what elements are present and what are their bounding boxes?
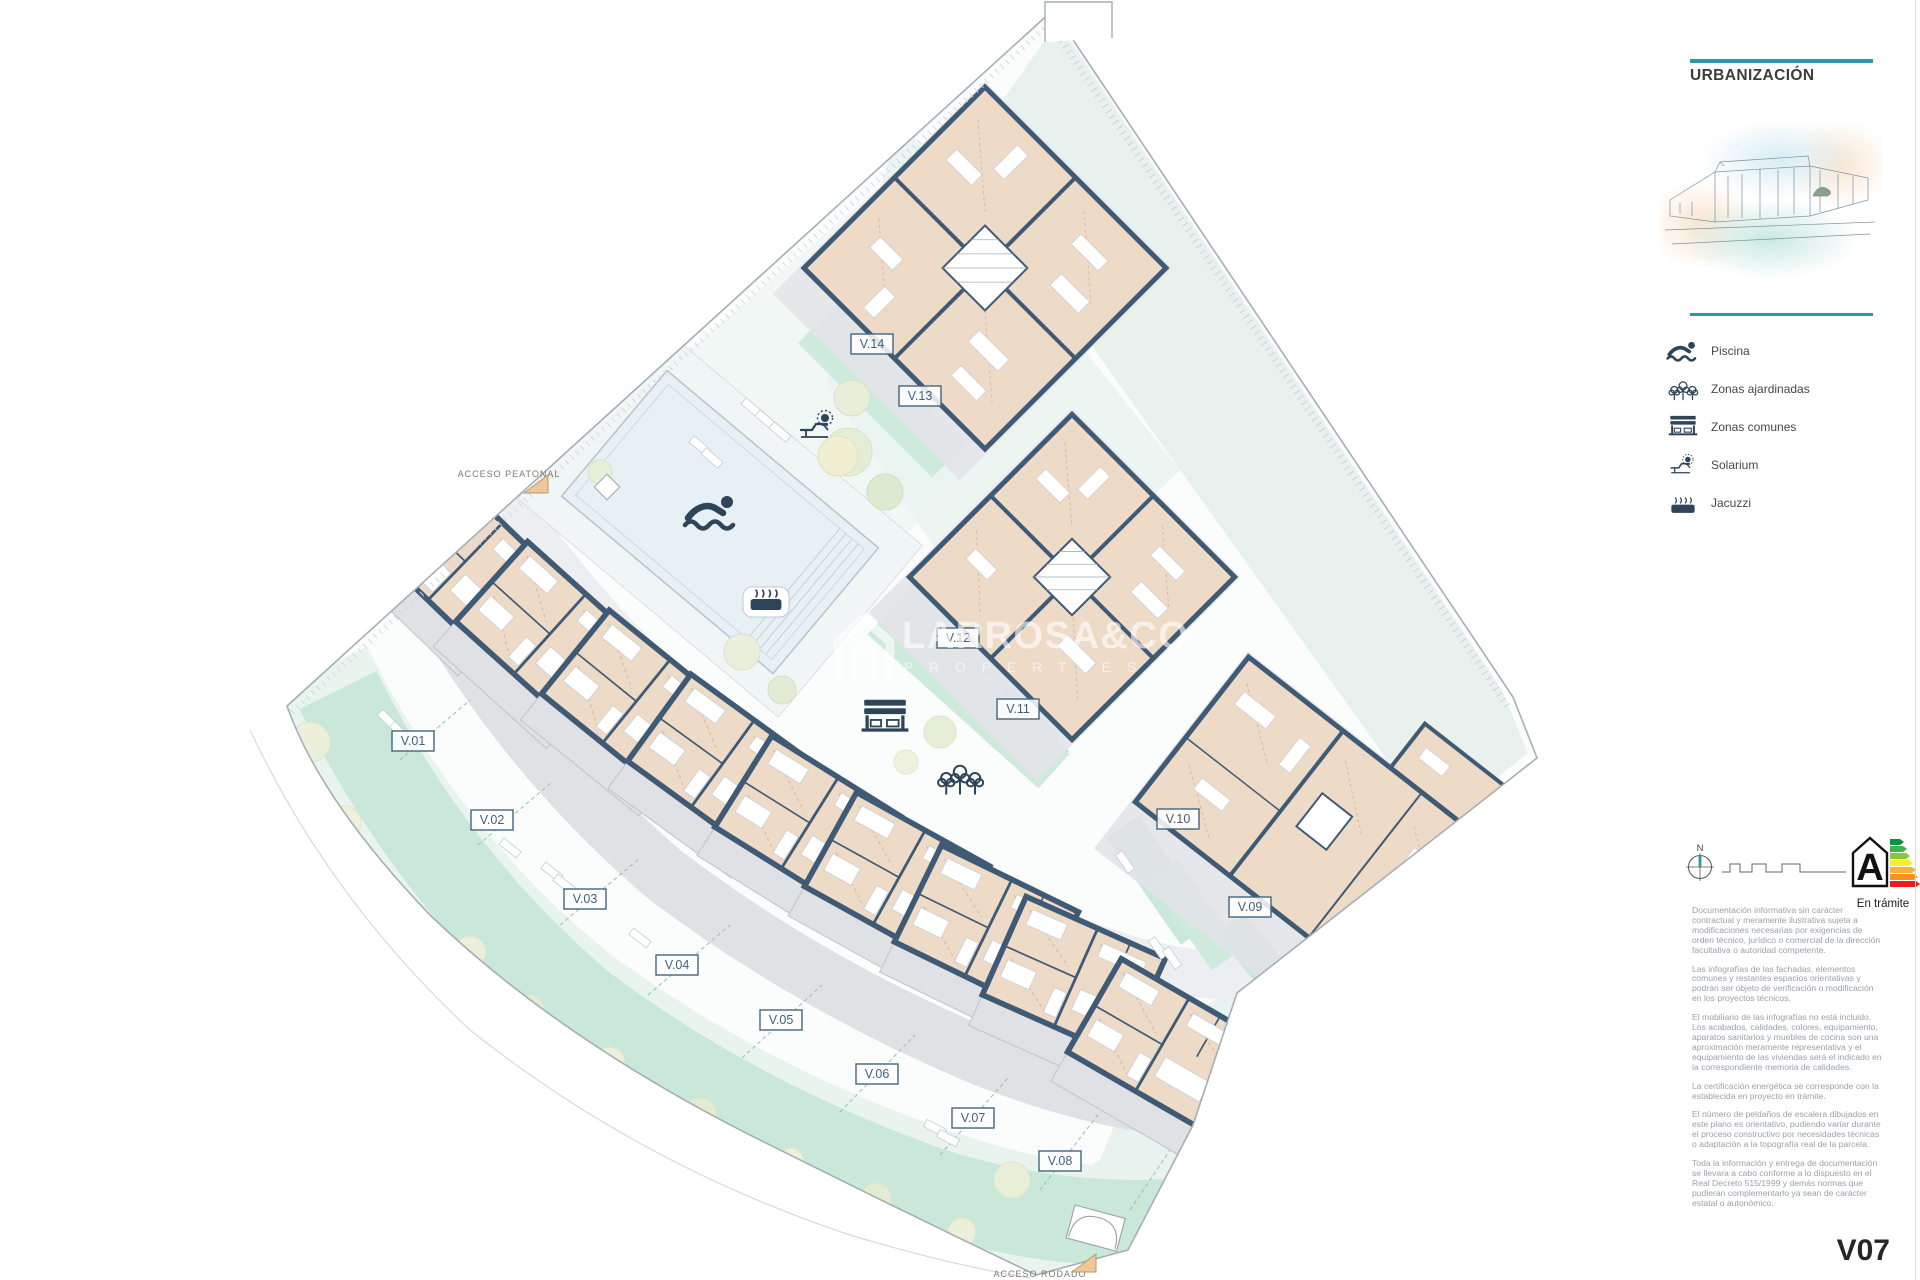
watermark-line2: P R O P E R T I E S <box>904 659 1142 675</box>
svg-text:V.01: V.01 <box>401 734 426 748</box>
panel-rule-bottom <box>1690 313 1873 316</box>
panel-rule-top <box>1690 59 1873 63</box>
disclaimer-paragraph: Las infografías de las fachadas, element… <box>1692 965 1884 1005</box>
legend-label: Zonas ajardinadas <box>1711 382 1810 396</box>
trees-icon <box>1664 374 1702 404</box>
villa-label: V.02 <box>471 810 513 830</box>
villa-label: V.08 <box>1039 1151 1081 1171</box>
disclaimer-paragraph: El mobiliario de las infografías no está… <box>1692 1013 1884 1072</box>
villa-label: V.14 <box>851 334 893 354</box>
access-road-label: ACCESO RODADO <box>993 1269 1086 1279</box>
solarium-icon <box>1664 450 1702 480</box>
compass-icon <box>1686 853 1714 881</box>
compass-north-label: N <box>1697 843 1704 854</box>
villa-label: V.04 <box>656 955 698 975</box>
villa-label: V.10 <box>1157 809 1199 829</box>
panel-title: URBANIZACIÓN <box>1690 67 1815 85</box>
bench-icon <box>1664 412 1702 442</box>
svg-text:V.07: V.07 <box>961 1111 986 1125</box>
svg-text:V.10: V.10 <box>1166 812 1191 826</box>
villa-label: V.05 <box>760 1010 802 1030</box>
legend-label: Zonas comunes <box>1711 420 1796 434</box>
svg-text:V.05: V.05 <box>769 1013 794 1027</box>
villa-label: V.13 <box>899 386 941 406</box>
svg-text:V.11: V.11 <box>1006 702 1030 716</box>
villa-label: V.06 <box>856 1064 898 1084</box>
legend: Piscina Zonas ajardinadas Zonas comunes … <box>1664 332 1894 522</box>
legend-row-zonas-ajardinadas: Zonas ajardinadas <box>1664 370 1894 408</box>
legend-label: Piscina <box>1711 344 1750 358</box>
disclaimer-paragraph: Documentación informativa sin carácter c… <box>1692 906 1884 956</box>
watermark-line1: LARROSA&CO <box>902 615 1189 657</box>
scale-bar <box>1722 864 1846 872</box>
disclaimer-paragraph: El número de peldaños de escalera dibuja… <box>1692 1110 1884 1150</box>
svg-text:V.14: V.14 <box>860 337 885 351</box>
svg-text:V.13: V.13 <box>908 389 933 403</box>
svg-text:V.06: V.06 <box>865 1067 890 1081</box>
page-edge-line <box>1915 0 1916 1280</box>
energy-certificate: A En trámite <box>1850 834 1920 910</box>
disclaimer-paragraph: La certificación energética se correspon… <box>1692 1082 1884 1102</box>
pool-icon <box>1664 336 1702 366</box>
site-plan: V.01 V.02 V.03 V.04 V.05 V.06 V.07 V.08 … <box>0 0 1920 1280</box>
svg-text:V.09: V.09 <box>1238 900 1263 914</box>
svg-text:V.08: V.08 <box>1048 1154 1073 1168</box>
villa-label: V.03 <box>564 889 606 909</box>
energy-letter: A <box>1856 847 1883 889</box>
villa-label: V.07 <box>952 1108 994 1128</box>
disclaimer-paragraph: Toda la información y entrega de documen… <box>1692 1159 1884 1209</box>
villa-label: V.11 <box>997 699 1039 719</box>
villa-label: V.01 <box>392 731 434 751</box>
jacuzzi-icon <box>1664 488 1702 518</box>
disclaimer: Documentación informativa sin carácter c… <box>1692 906 1884 1218</box>
legend-row-solarium: Solarium <box>1664 446 1894 484</box>
legend-label: Solarium <box>1711 458 1758 472</box>
legend-row-piscina: Piscina <box>1664 332 1894 370</box>
svg-text:V.03: V.03 <box>573 892 598 906</box>
svg-text:V.04: V.04 <box>665 958 690 972</box>
svg-text:V.02: V.02 <box>480 813 505 827</box>
legend-row-zonas-comunes: Zonas comunes <box>1664 408 1894 446</box>
jacuzzi-icon <box>743 587 789 617</box>
compass-and-scale: N <box>1684 840 1854 891</box>
villa-label: V.09 <box>1229 897 1271 917</box>
urbanization-sketch <box>1660 104 1882 292</box>
legend-row-jacuzzi: Jacuzzi <box>1664 484 1894 522</box>
legend-label: Jacuzzi <box>1711 496 1751 510</box>
sheet-code: V07 <box>1800 1234 1890 1268</box>
